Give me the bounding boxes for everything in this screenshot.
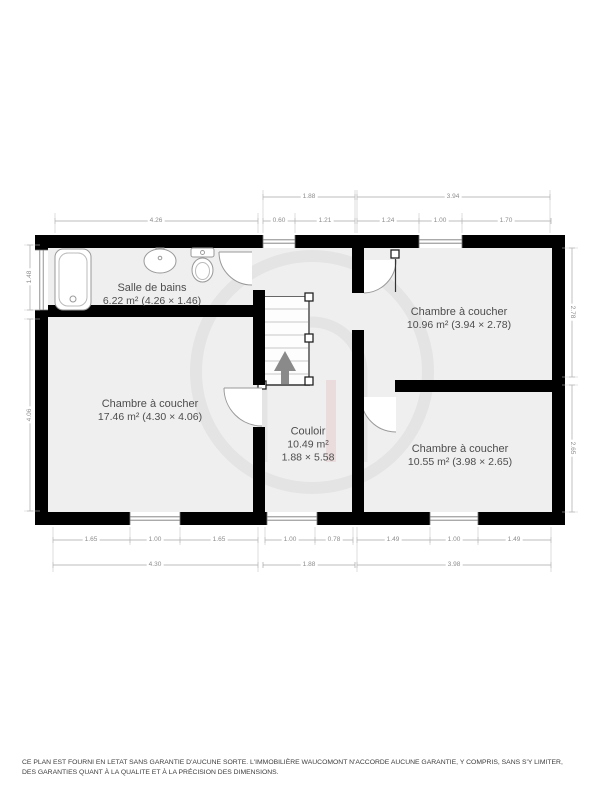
room-name: Salle de bains xyxy=(103,282,201,295)
room-name: Chambre à coucher xyxy=(98,398,202,411)
room-details: 17.46 m² (4.30 × 4.06) xyxy=(98,411,202,424)
room-details: 6.22 m² (4.26 × 1.46) xyxy=(103,295,201,308)
dim-label: 4.30 xyxy=(147,561,164,569)
dim-label: 0.60 xyxy=(271,217,288,225)
dim-label: 1.24 xyxy=(380,217,397,225)
dim-label: 3.98 xyxy=(446,561,463,569)
room-label-bedroom-left: Chambre à coucher 17.46 m² (4.30 × 4.06) xyxy=(98,398,202,424)
dim-label: 1.65 xyxy=(211,536,228,544)
disclaimer-text: CE PLAN EST FOURNI EN LETAT SANS GARANTI… xyxy=(22,758,567,778)
dim-label: 1.00 xyxy=(282,536,299,544)
dim-label: 1.70 xyxy=(498,217,515,225)
room-name: Chambre à coucher xyxy=(408,443,512,456)
dim-label: 2.65 xyxy=(568,440,576,457)
dim-label: 1.00 xyxy=(147,536,164,544)
dim-label: 3.94 xyxy=(445,193,462,201)
room-label-corridor: Couloir 10.49 m² 1.88 × 5.58 xyxy=(282,426,335,465)
dim-label: 1.88 xyxy=(301,193,318,201)
dim-label: 1.00 xyxy=(446,536,463,544)
floor-plan-page: Salle de bains 6.22 m² (4.26 × 1.46) Cha… xyxy=(0,0,603,800)
room-name: Couloir xyxy=(282,426,335,439)
toilet-icon xyxy=(191,248,214,282)
room-size: 1.88 × 5.58 xyxy=(282,452,335,465)
dim-label: 1.88 xyxy=(301,561,318,569)
room-label-bathroom: Salle de bains 6.22 m² (4.26 × 1.46) xyxy=(103,282,201,308)
room-details: 10.96 m² (3.94 × 2.78) xyxy=(407,319,511,332)
room-name: Chambre à coucher xyxy=(407,306,511,319)
dim-label: 1.49 xyxy=(506,536,523,544)
room-label-bedroom-right-top: Chambre à coucher 10.96 m² (3.94 × 2.78) xyxy=(407,306,511,332)
dim-label: 2.78 xyxy=(568,304,576,321)
room-label-bedroom-right-bottom: Chambre à coucher 10.55 m² (3.98 × 2.65) xyxy=(408,443,512,469)
bathtub-icon xyxy=(55,249,91,310)
door-hinge-post xyxy=(391,250,399,258)
floor-plan-svg xyxy=(0,0,603,800)
dim-label: 1.00 xyxy=(432,217,449,225)
dim-label: 0.78 xyxy=(326,536,343,544)
room-area: 10.49 m² xyxy=(282,439,335,452)
dim-label: 4.26 xyxy=(148,217,165,225)
dim-label: 1.48 xyxy=(26,269,34,286)
dim-label: 1.21 xyxy=(317,217,334,225)
dim-label: 1.65 xyxy=(83,536,100,544)
dim-label: 4.06 xyxy=(26,407,34,424)
room-details: 10.55 m² (3.98 × 2.65) xyxy=(408,456,512,469)
dim-label: 1.49 xyxy=(385,536,402,544)
